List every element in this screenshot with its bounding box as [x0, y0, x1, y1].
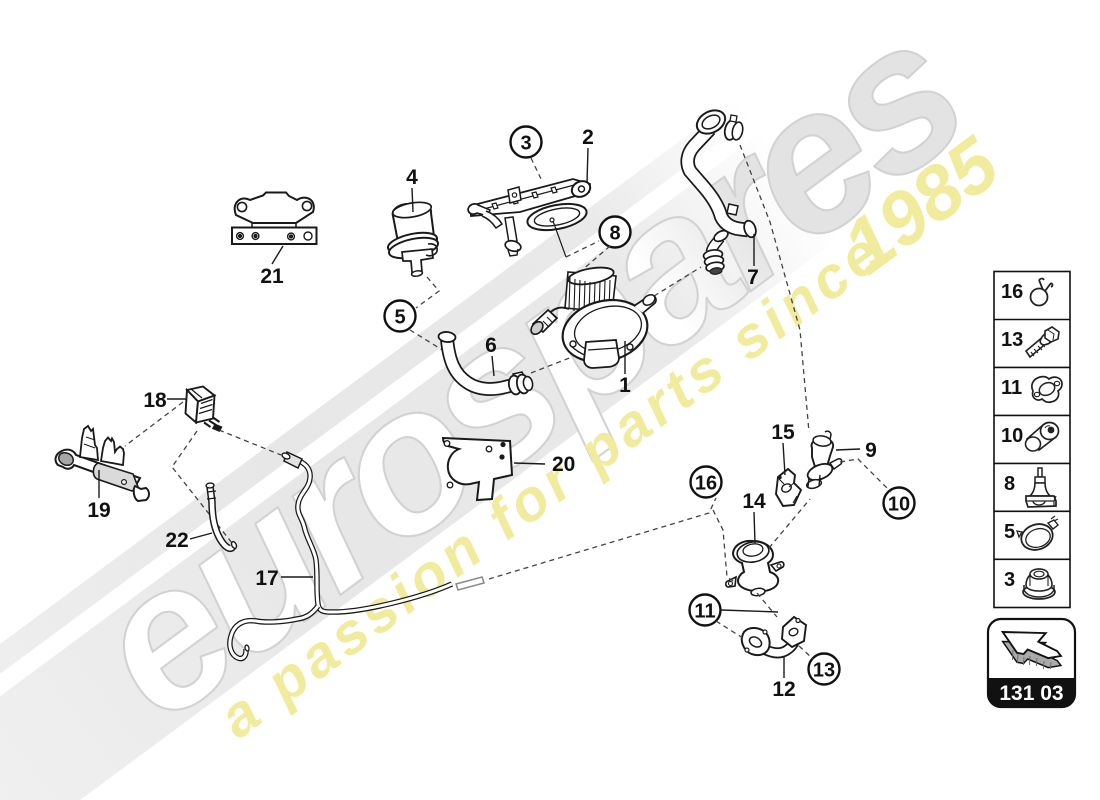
svg-text:14: 14: [742, 490, 766, 513]
svg-text:20: 20: [552, 453, 575, 476]
svg-text:13: 13: [813, 660, 835, 682]
svg-text:13: 13: [1001, 329, 1023, 351]
svg-text:15: 15: [771, 421, 795, 444]
svg-text:17: 17: [255, 567, 278, 590]
svg-text:18: 18: [143, 389, 167, 412]
svg-text:131 03: 131 03: [999, 682, 1063, 705]
svg-text:3: 3: [520, 133, 531, 155]
svg-text:16: 16: [1001, 281, 1023, 303]
svg-text:7: 7: [747, 266, 759, 289]
svg-text:6: 6: [485, 334, 497, 357]
svg-text:10: 10: [888, 494, 910, 516]
svg-text:9: 9: [865, 439, 877, 462]
svg-text:5: 5: [394, 307, 405, 329]
svg-text:19: 19: [87, 499, 110, 522]
svg-text:21: 21: [260, 265, 284, 288]
svg-text:3: 3: [1004, 569, 1015, 591]
svg-text:2: 2: [582, 126, 594, 149]
svg-text:22: 22: [165, 529, 188, 552]
svg-text:10: 10: [1001, 425, 1023, 447]
svg-text:11: 11: [1001, 377, 1022, 399]
svg-text:4: 4: [406, 166, 418, 189]
svg-text:1: 1: [619, 374, 631, 397]
svg-text:8: 8: [609, 223, 620, 245]
svg-text:8: 8: [1004, 473, 1015, 495]
svg-text:16: 16: [695, 473, 717, 495]
svg-text:5: 5: [1004, 521, 1015, 543]
svg-text:12: 12: [772, 678, 795, 701]
svg-text:11: 11: [694, 601, 715, 623]
